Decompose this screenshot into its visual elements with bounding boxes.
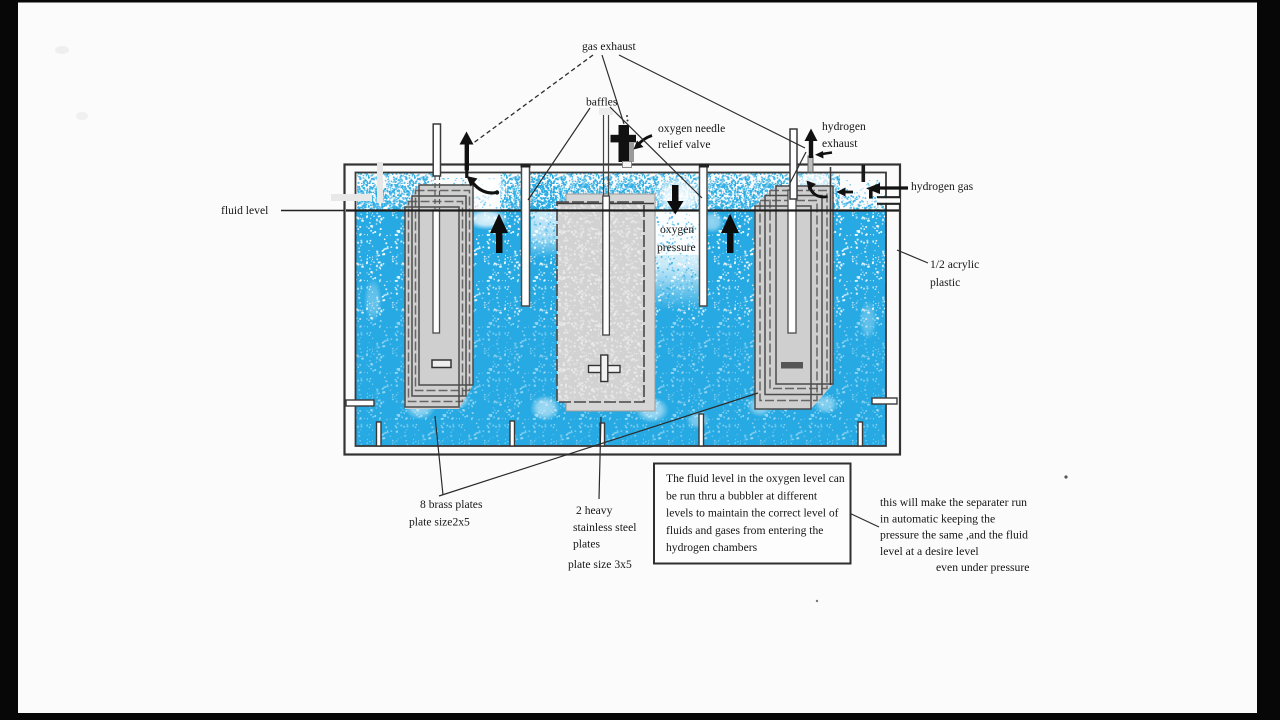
svg-text:baffles: baffles [586, 96, 618, 109]
svg-text:8 brass plates: 8 brass plates [420, 498, 483, 511]
svg-text:be run thru a bubbler at diffe: be run thru a bubbler at different [666, 489, 818, 502]
svg-text:hydrogen: hydrogen [822, 120, 866, 133]
svg-text:in automatic keeping the: in automatic keeping the [880, 512, 995, 525]
svg-text:The fluid level in the oxygen: The fluid level in the oxygen level can [666, 472, 845, 485]
svg-text:plates: plates [573, 538, 601, 551]
svg-text:hydrogen chambers: hydrogen chambers [666, 541, 758, 554]
svg-text:oxygen: oxygen [660, 223, 694, 236]
svg-text:fluid level: fluid level [221, 204, 268, 217]
svg-text:pressure: pressure [657, 241, 696, 254]
svg-text:exhaust: exhaust [822, 137, 858, 150]
svg-text:even under pressure: even under pressure [936, 561, 1029, 574]
svg-text:plate size 3x5: plate size 3x5 [568, 558, 632, 571]
svg-text:plastic: plastic [930, 276, 960, 289]
svg-text:gas exhaust: gas exhaust [582, 40, 637, 53]
svg-text:fluids and gases from entering: fluids and gases from entering the [666, 524, 823, 537]
svg-text:level at a desire level: level at a desire level [880, 545, 979, 558]
svg-text:hydrogen gas: hydrogen gas [911, 180, 974, 193]
svg-text:pressure the same ,and the flu: pressure the same ,and the fluid [880, 529, 1028, 542]
svg-text:relief valve: relief valve [658, 138, 710, 151]
svg-text:1/2 acrylic: 1/2 acrylic [930, 258, 979, 271]
svg-text:2 heavy: 2 heavy [576, 504, 613, 517]
svg-text:stainless steel: stainless steel [573, 521, 636, 534]
svg-text:this will make the separater r: this will make the separater run [880, 496, 1027, 509]
svg-text:oxygen needle: oxygen needle [658, 122, 725, 135]
svg-text:levels to maintain the correct: levels to maintain the correct level of [666, 507, 839, 520]
svg-text:plate size2x5: plate size2x5 [409, 516, 470, 529]
